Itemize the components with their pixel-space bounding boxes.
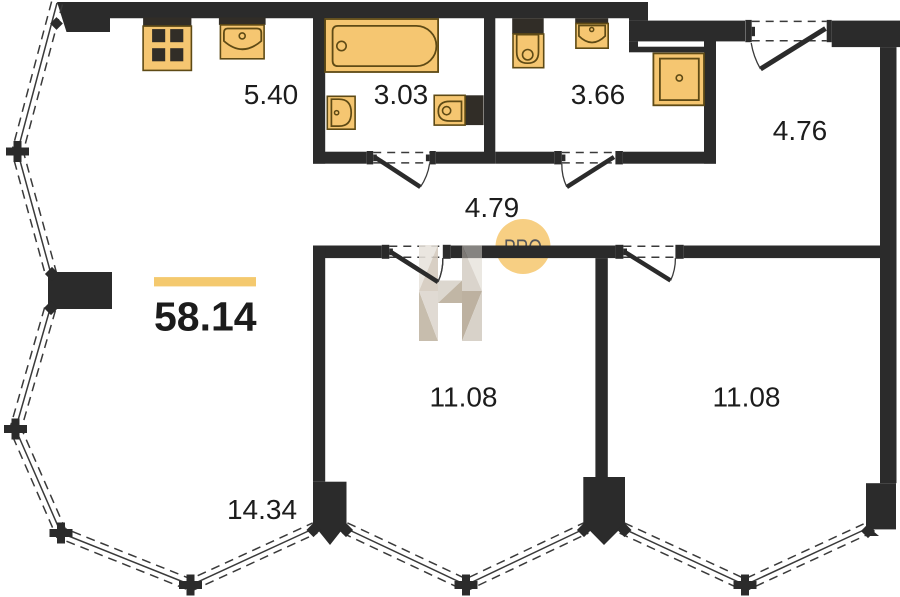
- svg-text:14.34: 14.34: [227, 494, 297, 525]
- svg-text:58.14: 58.14: [154, 294, 257, 340]
- svg-text:3.66: 3.66: [571, 79, 626, 110]
- svg-text:4.76: 4.76: [773, 115, 828, 146]
- svg-text:3.03: 3.03: [374, 79, 429, 110]
- svg-text:11.08: 11.08: [430, 382, 498, 413]
- svg-text:11.08: 11.08: [713, 382, 781, 413]
- svg-text:5.40: 5.40: [244, 79, 299, 110]
- svg-text:4.79: 4.79: [465, 192, 520, 223]
